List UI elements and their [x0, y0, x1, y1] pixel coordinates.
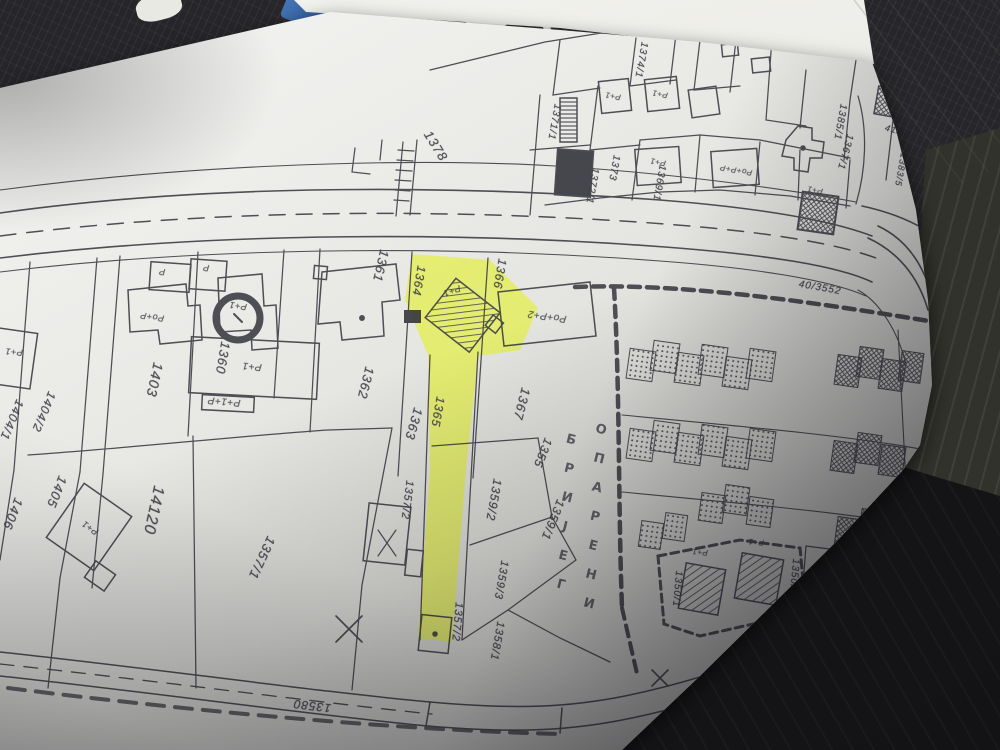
- building-storeys-label: P+1: [5, 346, 24, 358]
- cadastral-map-paper: 1361136213631364136513661367135513601403…: [0, 0, 1000, 750]
- zone-boundary-dashed: [575, 286, 935, 678]
- building-storeys-label: P: [158, 267, 165, 278]
- map-paper-wrapper: 1361136213631364136513661367135513601403…: [0, 0, 1000, 750]
- building-storeys-label: P+1: [692, 547, 709, 557]
- building-storeys-label: P: [202, 263, 209, 274]
- building-storeys-label: P+1: [748, 537, 765, 547]
- parcel-number-label: 1368: [859, 559, 873, 588]
- parcel-number-label: 1350/2: [787, 558, 801, 595]
- terraced-buildings: [626, 340, 924, 549]
- bottom-road: [0, 565, 958, 734]
- building-storeys-label: P+1: [242, 360, 262, 373]
- photo-of-cadastral-map: 1361136213631364136513661367135513601403…: [0, 0, 1000, 750]
